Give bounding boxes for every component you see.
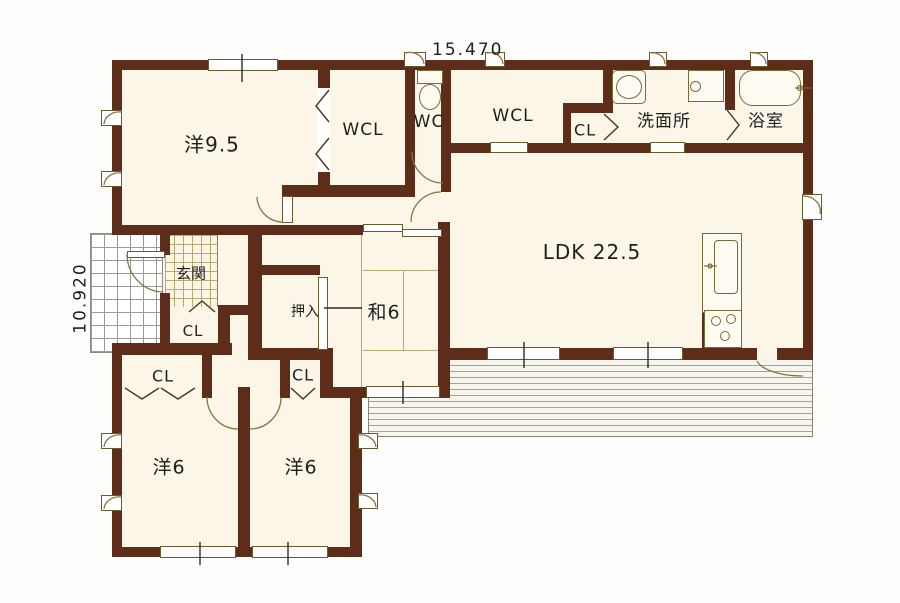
fold-door-icon bbox=[291, 388, 315, 399]
label-room-ldk: LDK 22.5 bbox=[543, 240, 642, 264]
label-room-wc: WC bbox=[414, 112, 445, 132]
window-arc bbox=[359, 495, 376, 507]
door-arc-west-room bbox=[257, 197, 283, 222]
bifold-door-icon bbox=[316, 138, 329, 170]
window-arc bbox=[104, 497, 121, 509]
label-room-cl-left: CL bbox=[152, 367, 174, 386]
window-arc bbox=[359, 435, 376, 447]
label-room-oshiire: 押入 bbox=[291, 301, 319, 321]
label-room-cl-genkan: CL bbox=[183, 322, 204, 340]
door-arc-deck bbox=[757, 361, 803, 376]
floor-plan: 洋9.5 WCL WC WCL CL 洗面所 浴室 LDK 22.5 玄関 CL… bbox=[0, 0, 900, 603]
door-arc-wc bbox=[412, 152, 443, 183]
window-arc bbox=[104, 173, 121, 185]
bifold-door-icon bbox=[316, 90, 329, 122]
label-room-wcl-east: WCL bbox=[492, 106, 533, 126]
dimension-height-label: 10.920 bbox=[71, 262, 91, 333]
window-arc bbox=[803, 196, 820, 214]
door-arc-bedroom-left bbox=[207, 397, 238, 429]
label-room-western6-right: 洋6 bbox=[284, 453, 317, 480]
window-arc bbox=[752, 53, 766, 64]
label-room-bathroom: 浴室 bbox=[748, 107, 784, 132]
label-room-western95: 洋9.5 bbox=[184, 129, 240, 158]
label-room-genkan: 玄関 bbox=[176, 263, 206, 284]
label-room-cl-right: CL bbox=[292, 366, 314, 385]
door-arc-bedroom-right bbox=[250, 397, 281, 429]
window-arc bbox=[104, 112, 121, 124]
door-arc-entrance bbox=[127, 254, 163, 292]
door-arc-hall-ldk bbox=[411, 192, 441, 222]
window-arc bbox=[406, 52, 424, 64]
plan-symbols bbox=[0, 0, 900, 603]
label-room-western6-left: 洋6 bbox=[152, 453, 185, 480]
label-room-cl-top: CL bbox=[574, 121, 596, 140]
fold-door-icon bbox=[189, 301, 215, 312]
fold-door-icon bbox=[604, 114, 618, 140]
fold-door-icon bbox=[727, 110, 739, 140]
fold-door-icon bbox=[125, 388, 195, 399]
window-arc bbox=[104, 435, 121, 447]
label-room-japanese6: 和6 bbox=[367, 298, 400, 325]
label-room-wcl-west: WCL bbox=[342, 120, 383, 140]
dimension-width-label: 15.470 bbox=[432, 40, 503, 60]
window-arc bbox=[651, 53, 665, 64]
label-room-washroom: 洗面所 bbox=[637, 107, 691, 132]
